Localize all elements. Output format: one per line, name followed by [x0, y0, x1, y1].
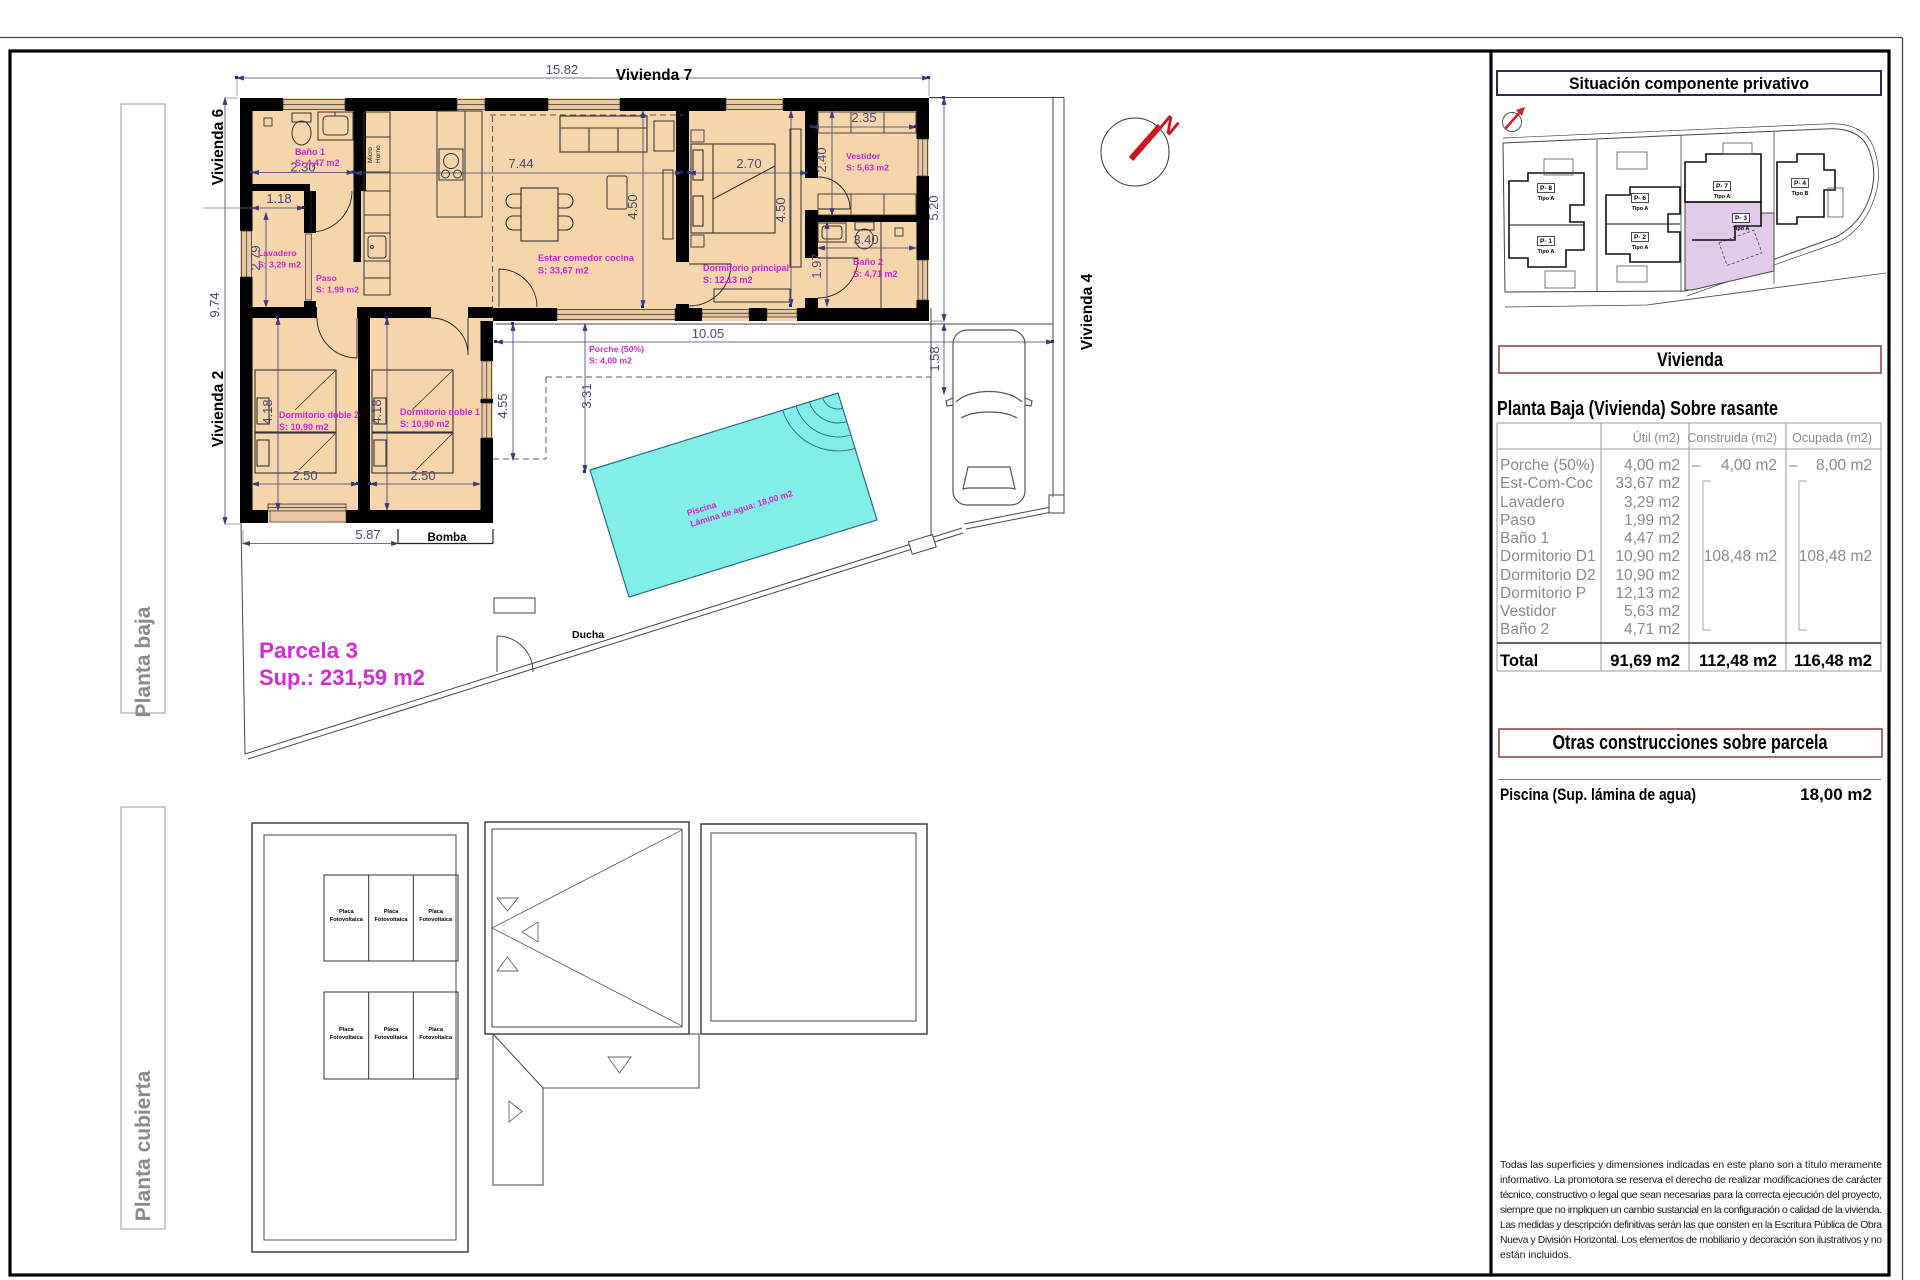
- svg-text:4,71 m2: 4,71 m2: [1624, 621, 1680, 638]
- svg-text:116,48 m2: 116,48 m2: [1794, 652, 1872, 670]
- svg-text:Nueva y División Horizontal. L: Nueva y División Horizontal. Los element…: [1500, 1235, 1882, 1246]
- svg-text:2.50: 2.50: [410, 468, 435, 483]
- svg-text:informativo. La promotora se r: informativo. La promotora se reserva el …: [1500, 1175, 1883, 1186]
- svg-text:Horno: Horno: [375, 145, 382, 163]
- svg-text:Placa: Placa: [339, 1027, 355, 1033]
- svg-text:Tipo A: Tipo A: [1538, 196, 1555, 202]
- svg-text:Fotovoltaica: Fotovoltaica: [330, 917, 364, 923]
- svg-text:Lavadero: Lavadero: [1500, 494, 1565, 511]
- svg-text:S: 10,90 m2: S: 10,90 m2: [279, 422, 329, 432]
- svg-text:Lavadero: Lavadero: [258, 248, 297, 258]
- svg-text:12,13 m2: 12,13 m2: [1615, 585, 1680, 602]
- svg-text:Placa: Placa: [339, 909, 355, 915]
- svg-text:S: 4,47 m2: S: 4,47 m2: [295, 158, 340, 168]
- svg-text:Paso: Paso: [1500, 512, 1535, 529]
- svg-text:S: 4,00 m2: S: 4,00 m2: [589, 356, 632, 366]
- svg-text:Fotovoltaica: Fotovoltaica: [330, 1035, 364, 1041]
- svg-text:Fotovoltaica: Fotovoltaica: [419, 1035, 453, 1041]
- svg-text:están incluidos.: están incluidos.: [1500, 1250, 1572, 1261]
- svg-text:S: 3,29 m2: S: 3,29 m2: [258, 260, 301, 270]
- svg-text:1,99 m2: 1,99 m2: [1624, 512, 1680, 529]
- svg-text:Placa: Placa: [428, 909, 444, 915]
- svg-text:10.05: 10.05: [692, 326, 725, 341]
- svg-text:S: 10,90 m2: S: 10,90 m2: [400, 419, 450, 429]
- svg-text:S: 12,13 m2: S: 12,13 m2: [703, 275, 753, 285]
- svg-text:Vestidor: Vestidor: [1500, 603, 1556, 620]
- svg-text:Micro: Micro: [367, 147, 374, 163]
- svg-text:3,29 m2: 3,29 m2: [1624, 494, 1680, 511]
- svg-text:Tipo A: Tipo A: [1538, 249, 1555, 255]
- svg-text:4.18: 4.18: [369, 399, 384, 424]
- svg-text:Est-Com-Coc: Est-Com-Coc: [1500, 475, 1593, 492]
- svg-text:Porche (50%): Porche (50%): [589, 344, 644, 354]
- svg-text:Tipo A: Tipo A: [1632, 245, 1649, 251]
- svg-text:Dormitorio P: Dormitorio P: [1500, 585, 1586, 602]
- svg-text:10,90 m2: 10,90 m2: [1615, 567, 1680, 584]
- svg-text:18,00 m2: 18,00 m2: [1800, 785, 1872, 804]
- svg-text:2.70: 2.70: [736, 156, 761, 171]
- svg-text:Todas las superficies y dimens: Todas las superficies y dimensiones indi…: [1500, 1160, 1882, 1171]
- svg-text:9.74: 9.74: [207, 292, 222, 317]
- svg-text:2.40: 2.40: [814, 147, 829, 172]
- svg-text:Planta baja: Planta baja: [132, 606, 155, 717]
- svg-text:Dormitorio principal: Dormitorio principal: [703, 263, 789, 273]
- svg-text:Porche (50%): Porche (50%): [1500, 457, 1595, 474]
- svg-text:Dormitorio doble 2: Dormitorio doble 2: [279, 410, 359, 420]
- svg-text:5,63 m2: 5,63 m2: [1624, 603, 1680, 620]
- svg-text:Tipo A: Tipo A: [1632, 206, 1649, 212]
- svg-text:Paso: Paso: [316, 273, 337, 283]
- svg-text:91,69 m2: 91,69 m2: [1610, 652, 1680, 670]
- svg-text:Placa: Placa: [384, 909, 400, 915]
- svg-text:P- 3: P- 3: [1735, 215, 1747, 222]
- svg-text:1.97: 1.97: [809, 253, 824, 278]
- svg-text:Vivienda 4: Vivienda 4: [1079, 273, 1096, 350]
- svg-text:Baño 2: Baño 2: [853, 257, 883, 267]
- svg-text:2.50: 2.50: [292, 468, 317, 483]
- svg-text:Vivienda: Vivienda: [1657, 350, 1723, 371]
- svg-text:Dormitorio D2: Dormitorio D2: [1500, 567, 1596, 584]
- svg-text:112,48 m2: 112,48 m2: [1699, 652, 1777, 670]
- svg-text:7.44: 7.44: [508, 156, 533, 171]
- svg-text:1.18: 1.18: [266, 191, 291, 206]
- svg-text:5.87: 5.87: [355, 527, 380, 542]
- svg-text:Baño 1: Baño 1: [295, 147, 325, 157]
- svg-text:3.31: 3.31: [579, 383, 594, 408]
- svg-text:Tipo B: Tipo B: [1791, 191, 1808, 197]
- svg-text:2.35: 2.35: [851, 110, 876, 125]
- svg-text:P- 4: P- 4: [1794, 180, 1806, 187]
- svg-text:S: 5,63 m2: S: 5,63 m2: [846, 163, 889, 173]
- svg-text:Situación componente privativo: Situación componente privativo: [1569, 74, 1809, 93]
- svg-text:P- 6: P- 6: [1634, 195, 1646, 202]
- svg-text:Ducha: Ducha: [572, 629, 604, 641]
- svg-text:4,00 m2: 4,00 m2: [1624, 457, 1680, 474]
- svg-text:–: –: [1789, 457, 1798, 474]
- svg-text:Parcela 3: Parcela 3: [259, 638, 358, 663]
- svg-text:108,48 m2: 108,48 m2: [1704, 548, 1777, 565]
- svg-text:Baño 2: Baño 2: [1500, 621, 1549, 638]
- svg-text:4.55: 4.55: [495, 393, 510, 418]
- svg-text:108,48 m2: 108,48 m2: [1799, 548, 1872, 565]
- svg-text:Vivienda 6: Vivienda 6: [210, 108, 227, 185]
- svg-text:10,90 m2: 10,90 m2: [1615, 548, 1680, 565]
- svg-text:8,00 m2: 8,00 m2: [1816, 457, 1872, 474]
- svg-text:3.40: 3.40: [853, 232, 878, 247]
- svg-text:5.20: 5.20: [926, 195, 941, 220]
- svg-text:Piscina (Sup. lámina de agua): Piscina (Sup. lámina de agua): [1500, 785, 1696, 804]
- svg-text:Otras construcciones sobre par: Otras construcciones sobre parcela: [1553, 732, 1829, 754]
- svg-text:P- 2: P- 2: [1634, 234, 1646, 241]
- svg-text:Dormitorio D1: Dormitorio D1: [1500, 548, 1596, 565]
- svg-text:Fotovoltaica: Fotovoltaica: [375, 917, 409, 923]
- svg-text:Total: Total: [1500, 652, 1538, 670]
- svg-text:Bomba: Bomba: [428, 532, 468, 544]
- svg-text:1.58: 1.58: [927, 346, 942, 371]
- svg-text:Planta cubierta: Planta cubierta: [132, 1070, 155, 1221]
- svg-text:Placa: Placa: [428, 1027, 444, 1033]
- svg-text:P- 7: P- 7: [1716, 183, 1728, 190]
- svg-text:S: 33,67 m2: S: 33,67 m2: [538, 266, 589, 276]
- svg-text:P- 1: P- 1: [1540, 238, 1552, 245]
- svg-text:Fotovoltaica: Fotovoltaica: [375, 1035, 409, 1041]
- svg-text:4,00 m2: 4,00 m2: [1721, 457, 1777, 474]
- svg-text:4.50: 4.50: [773, 197, 788, 222]
- svg-text:4.18: 4.18: [260, 399, 275, 424]
- svg-text:siempre que no impliquen un ca: siempre que no impliquen un cambio susta…: [1500, 1205, 1882, 1216]
- svg-text:Tipo A: Tipo A: [1714, 194, 1731, 200]
- svg-text:Útil (m2): Útil (m2): [1633, 430, 1680, 445]
- svg-text:15.82: 15.82: [546, 62, 579, 77]
- svg-text:Placa: Placa: [384, 1027, 400, 1033]
- svg-text:Las medidas y descripción defi: Las medidas y descripción definitivas se…: [1500, 1220, 1882, 1231]
- svg-text:4.50: 4.50: [625, 194, 640, 219]
- svg-text:Baño 1: Baño 1: [1500, 530, 1549, 547]
- svg-text:Vivienda 2: Vivienda 2: [210, 371, 227, 447]
- svg-text:técnico, constructivo o legal: técnico, constructivo o legal que sean n…: [1500, 1190, 1882, 1201]
- svg-text:33,67 m2: 33,67 m2: [1615, 475, 1680, 492]
- svg-text:S: 1,99 m2: S: 1,99 m2: [316, 285, 359, 295]
- svg-text:P- 8: P- 8: [1540, 185, 1552, 192]
- svg-text:Construida (m2): Construida (m2): [1687, 431, 1777, 445]
- svg-text:Vestidor: Vestidor: [846, 151, 881, 161]
- svg-text:Ocupada (m2): Ocupada (m2): [1792, 431, 1872, 445]
- svg-text:–: –: [1692, 457, 1701, 474]
- svg-text:Vivienda 7: Vivienda 7: [616, 67, 692, 84]
- svg-text:4,47 m2: 4,47 m2: [1624, 530, 1680, 547]
- svg-text:Planta Baja (Vivienda) Sobre r: Planta Baja (Vivienda) Sobre rasante: [1497, 398, 1778, 420]
- svg-text:Sup.: 231,59 m2: Sup.: 231,59 m2: [259, 665, 425, 690]
- svg-text:Dormitorio doble 1: Dormitorio doble 1: [400, 407, 480, 417]
- svg-text:Tipo A: Tipo A: [1733, 226, 1750, 232]
- svg-text:Fotovoltaica: Fotovoltaica: [419, 917, 453, 923]
- svg-text:Estar comedor cocina: Estar comedor cocina: [538, 253, 635, 263]
- svg-text:S: 4,71 m2: S: 4,71 m2: [853, 269, 898, 279]
